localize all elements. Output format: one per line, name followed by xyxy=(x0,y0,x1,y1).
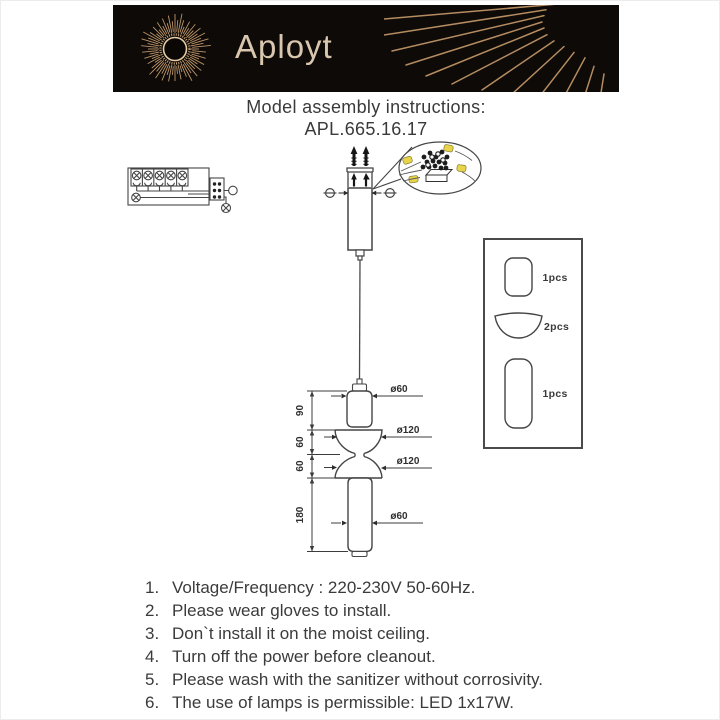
part-tube-shape xyxy=(505,359,532,428)
page-title: Model assembly instructions: xyxy=(113,96,619,118)
diameter-dim-60-bottom: ø60 xyxy=(390,511,408,522)
ceiling-canopy xyxy=(348,188,372,250)
banner-rays-decoration xyxy=(384,5,619,92)
title-block: Model assembly instructions: APL.665.16.… xyxy=(113,96,619,140)
part-qty-2: 2pcs xyxy=(544,321,569,333)
lamp-top-cap xyxy=(353,384,367,391)
part-qty-3: 1pcs xyxy=(543,388,568,400)
instruction-item-2: 2. Please wear gloves to install. xyxy=(145,599,615,622)
junction-circle xyxy=(229,186,238,195)
instruction-text: Voltage/Frequency : 220-230V 50-60Hz. xyxy=(172,576,615,599)
instruction-text: Don`t install it on the moist ceiling. xyxy=(172,622,615,645)
lamp-symbols-row xyxy=(132,171,186,186)
mounting-screws-icon xyxy=(351,146,370,166)
instruction-number: 2. xyxy=(145,599,172,622)
model-number: APL.665.16.17 xyxy=(113,118,619,140)
part-bowl-shape xyxy=(495,313,542,338)
instruction-item-1: 1. Voltage/Frequency : 220-230V 50-60Hz. xyxy=(145,576,615,599)
strain-relief xyxy=(356,250,364,260)
part-qty-1: 1pcs xyxy=(543,272,568,284)
brand-wordmark: Aployt xyxy=(235,30,333,63)
instruction-text: Please wash with the sanitizer without c… xyxy=(172,668,615,691)
upper-diffuser-bowl xyxy=(335,430,382,457)
parts-box-contents: 1pcs 2pcs 1pcs xyxy=(485,240,581,447)
instruction-text: The use of lamps is permissible: LED 1x1… xyxy=(172,691,615,714)
instruction-item-6: 6. The use of lamps is permissible: LED … xyxy=(145,691,615,714)
instruction-text: Turn off the power before cleanout. xyxy=(172,645,615,668)
wiring-diagram xyxy=(120,158,245,220)
terminal-block xyxy=(210,178,224,200)
instruction-list: 1. Voltage/Frequency : 220-230V 50-60Hz.… xyxy=(145,576,615,714)
lower-diffuser-bowl xyxy=(335,457,382,479)
bracket-arrows-icon xyxy=(351,173,370,187)
lamp-assembly-drawing: 90 60 60 180 ø60 ø120 ø120 ø60 xyxy=(295,138,490,583)
lamp-body xyxy=(335,379,382,557)
height-dim-90: 90 xyxy=(295,405,306,417)
instruction-number: 6. xyxy=(145,691,172,714)
diameter-dim-120-lower: ø120 xyxy=(397,456,420,467)
height-dim-60a: 60 xyxy=(295,436,306,448)
suspension-wire xyxy=(360,260,361,379)
switch-symbol xyxy=(222,204,231,213)
diameter-dim-60-top: ø60 xyxy=(390,384,408,395)
instruction-number: 3. xyxy=(145,622,172,645)
instruction-number: 4. xyxy=(145,645,172,668)
height-dim-60b: 60 xyxy=(295,460,306,472)
part-canopy-shape xyxy=(505,258,532,296)
instruction-text: Please wear gloves to install. xyxy=(172,599,615,622)
diameter-dim-120-upper: ø120 xyxy=(397,425,420,436)
lamp-bottom-cap xyxy=(352,552,367,557)
parts-box: 1pcs 2pcs 1pcs xyxy=(483,238,583,449)
instruction-item-5: 5. Please wash with the sanitizer withou… xyxy=(145,668,615,691)
sunburst-logo-icon xyxy=(133,5,217,92)
instruction-item-4: 4. Turn off the power before cleanout. xyxy=(145,645,615,668)
lamp-top-stub xyxy=(357,379,362,384)
height-dim-180: 180 xyxy=(295,506,306,523)
lower-cylinder xyxy=(348,478,372,552)
ceiling-bracket xyxy=(347,168,373,187)
instruction-number: 5. xyxy=(145,668,172,691)
wiring-callout-balloon xyxy=(373,142,481,194)
upper-cylinder xyxy=(347,391,372,427)
brand-banner: Aployt xyxy=(113,5,619,92)
instruction-item-3: 3. Don`t install it on the moist ceiling… xyxy=(145,622,615,645)
instruction-number: 1. xyxy=(145,576,172,599)
lamp-symbol-bottom xyxy=(132,193,141,202)
